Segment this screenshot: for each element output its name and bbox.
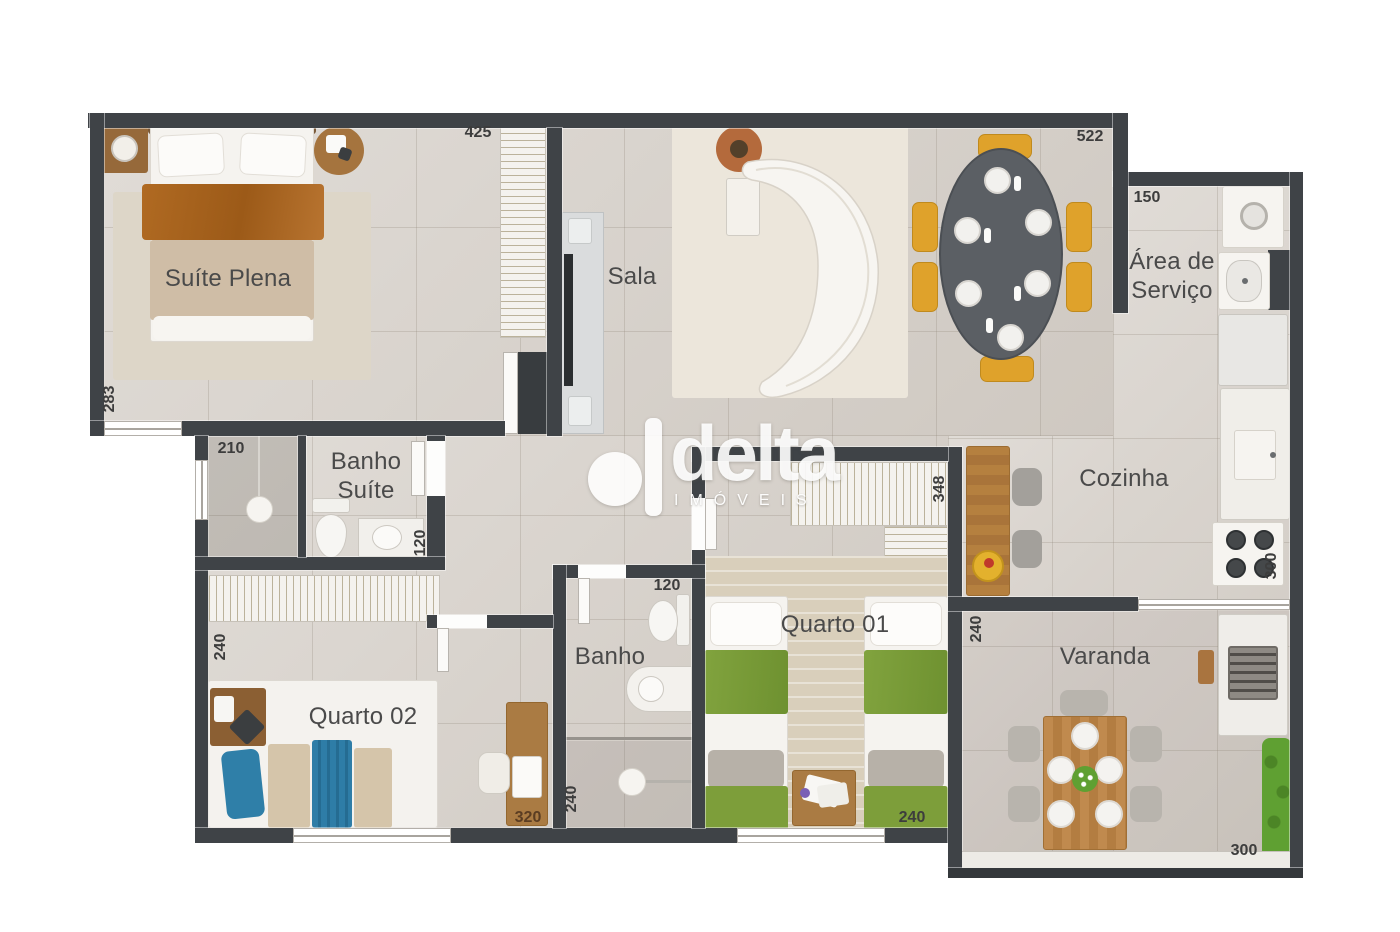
- faucet-dot: [1242, 278, 1248, 284]
- bar-stool: [1012, 530, 1042, 568]
- bed-blanket-green: [864, 650, 948, 714]
- washing-machine-door: [1240, 202, 1268, 230]
- burner: [1226, 530, 1246, 550]
- dim-quarto01-bottom: 240: [899, 809, 926, 827]
- wall: [948, 597, 1138, 611]
- q2-blanket-beige: [354, 748, 392, 828]
- faucet-dot: [1270, 452, 1276, 458]
- room-label-area-servico: Área de Serviço: [1107, 248, 1237, 306]
- bed-pillow-gray: [708, 750, 784, 788]
- wall: [1113, 172, 1303, 186]
- room-label-sala: Sala: [608, 263, 657, 291]
- shower-head: [246, 496, 273, 523]
- plate: [1047, 800, 1075, 828]
- hall-wardrobe: [208, 575, 440, 622]
- watermark-logo-icon: [588, 452, 642, 506]
- wall: [195, 557, 445, 570]
- watermark: delta IMÓVEIS: [586, 418, 886, 522]
- dim-suite-left: 283: [101, 386, 119, 413]
- room-label-quarto-01: Quarto 01: [781, 611, 890, 639]
- plate: [954, 217, 981, 244]
- watermark-logo-bar-icon: [645, 418, 662, 516]
- dim-quarto01-right: 348: [931, 476, 949, 503]
- plate: [1095, 800, 1123, 828]
- watermark-subtitle: IMÓVEIS: [674, 492, 818, 510]
- dim-banho-suite-top: 210: [218, 440, 245, 458]
- wall: [948, 868, 1303, 878]
- suite-door-recess: [518, 352, 548, 434]
- door-leaf: [437, 628, 449, 672]
- dim-quarto02-left: 240: [212, 634, 230, 661]
- dim-banho-left: 240: [563, 786, 581, 813]
- plate: [1047, 756, 1075, 784]
- shower-head: [618, 768, 646, 796]
- balcony-chair: [1060, 690, 1108, 716]
- bed-pillow-gray: [868, 750, 944, 788]
- plate: [955, 280, 982, 307]
- door-opening: [427, 441, 445, 496]
- refrigerator: [1218, 314, 1288, 386]
- bed-blanket-green: [704, 650, 788, 714]
- dim-banho-suite-right: 120: [412, 530, 430, 557]
- dim-suite-top: 425: [465, 124, 492, 142]
- q1-deco: [800, 788, 810, 798]
- wall: [1290, 172, 1303, 878]
- sliding-door: [1138, 599, 1290, 610]
- window: [195, 460, 208, 520]
- wall: [88, 113, 1128, 128]
- toilet-tank: [676, 594, 690, 646]
- dim-banho-top: 120: [654, 577, 681, 595]
- door-leaf-suite: [503, 352, 518, 434]
- burner: [1254, 530, 1274, 550]
- room-label-varanda: Varanda: [1060, 643, 1150, 671]
- dim-varanda-bottom: 300: [1231, 842, 1258, 860]
- grill-shelf: [1198, 650, 1214, 684]
- wall: [948, 447, 962, 878]
- dining-chair: [912, 202, 938, 252]
- napkin: [986, 318, 993, 333]
- suite-bed-foot: [153, 316, 311, 340]
- door-opening: [437, 615, 487, 628]
- bathroom-basin: [372, 525, 402, 550]
- shower-arm: [646, 780, 692, 783]
- bathroom-basin: [638, 676, 664, 702]
- balcony-chair: [1008, 786, 1040, 822]
- balcony-chair: [1130, 726, 1162, 762]
- plate: [1095, 756, 1123, 784]
- fruit: [984, 558, 994, 568]
- door-opening: [578, 565, 626, 578]
- lamp: [111, 135, 138, 162]
- q2-chair: [478, 752, 510, 794]
- grill: [1228, 646, 1278, 700]
- dim-sala-top: 522: [1077, 128, 1104, 146]
- watermark-wordmark: delta: [670, 420, 837, 486]
- dining-chair: [980, 356, 1034, 382]
- wall: [547, 128, 562, 436]
- q2-pillow-blue: [221, 748, 266, 820]
- tv: [564, 254, 573, 386]
- toilet-bowl: [648, 600, 678, 642]
- q2-blanket-blue: [312, 740, 352, 828]
- balcony-chair: [1008, 726, 1040, 762]
- curved-sofa: [726, 146, 896, 406]
- wall: [553, 565, 705, 578]
- q2-blanket-beige: [268, 744, 310, 828]
- napkin: [984, 228, 991, 243]
- magazine: [817, 782, 850, 808]
- suite-blanket-orange: [142, 184, 324, 240]
- plate: [997, 324, 1024, 351]
- plate: [1071, 722, 1099, 750]
- bed-pillow: [710, 602, 782, 646]
- bed-blanket-green: [704, 786, 788, 830]
- dining-chair: [1066, 202, 1092, 252]
- flower-centerpiece: [1072, 766, 1098, 792]
- wall: [298, 436, 306, 557]
- napkin: [1014, 286, 1021, 301]
- dining-chair: [912, 262, 938, 312]
- suite-wardrobe: [500, 124, 546, 338]
- bar-stool: [1012, 468, 1042, 506]
- suite-pillow: [157, 132, 225, 177]
- plate: [984, 167, 1011, 194]
- floor-plan: Suíte Plena Sala Área de Serviço Banho S…: [0, 0, 1400, 932]
- shower-glass: [566, 737, 692, 740]
- speaker: [568, 218, 592, 244]
- plate: [1025, 209, 1052, 236]
- dim-servico-top: 150: [1134, 189, 1161, 207]
- burner: [1226, 558, 1246, 578]
- room-label-cozinha: Cozinha: [1079, 465, 1168, 493]
- dining-chair: [1066, 262, 1092, 312]
- dim-quarto02-bottom: 320: [515, 809, 542, 827]
- window: [104, 421, 182, 436]
- balcony-chair: [1130, 786, 1162, 822]
- napkin: [1014, 176, 1021, 191]
- room-label-quarto-02: Quarto 02: [309, 703, 418, 731]
- window: [293, 828, 451, 843]
- planter: [1262, 738, 1292, 858]
- plate: [1024, 270, 1051, 297]
- dim-varanda-left: 240: [968, 616, 986, 643]
- laundry-niche: [1268, 250, 1290, 310]
- window: [737, 828, 885, 843]
- q2-laptop: [512, 756, 542, 798]
- suite-pillow: [239, 132, 307, 177]
- room-label-suite-plena: Suíte Plena: [165, 265, 291, 293]
- q2-desk-paper: [214, 696, 234, 722]
- room-label-banho-suite: Banho Suíte: [321, 448, 411, 506]
- room-label-banho: Banho: [575, 643, 645, 671]
- door-leaf: [578, 578, 590, 624]
- dim-cozinha-right: 300: [1263, 553, 1281, 580]
- door-leaf: [411, 441, 425, 496]
